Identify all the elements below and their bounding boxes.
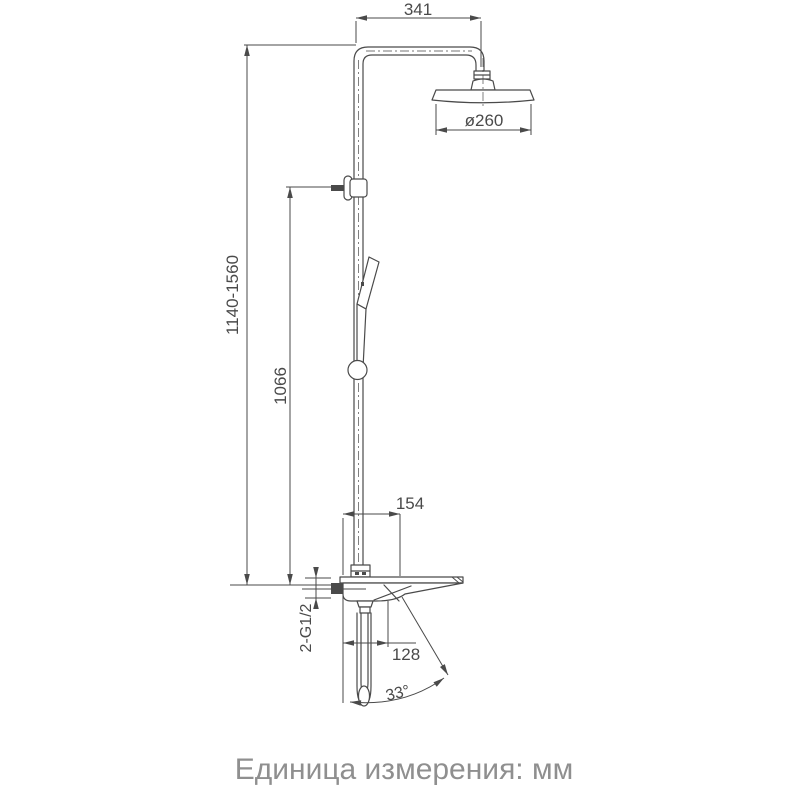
shower-head <box>432 58 534 108</box>
dim-inlet-thread-label: 2-G1/2 <box>298 603 315 652</box>
dim-riser-height-label: 1066 <box>271 367 290 405</box>
dim-spout-reach: 128 <box>343 587 420 703</box>
dim-arm-length-label: 341 <box>404 0 432 19</box>
faucet-body <box>302 577 463 601</box>
dim-total-height-label: 1140-1560 <box>223 255 242 335</box>
shower-system-technical-drawing: 341 ø260 1140-1560 1066 154 128 2-G1/2 <box>0 0 800 800</box>
hand-shower-head <box>357 257 379 309</box>
shower-hose <box>357 601 373 706</box>
dim-head-diameter: ø260 <box>436 104 531 135</box>
hose-nut <box>357 601 373 607</box>
dim-head-diameter-label: ø260 <box>465 111 504 130</box>
column-connector <box>351 565 370 577</box>
hand-shower-handle <box>357 304 366 368</box>
units-caption: Единица измерения: мм <box>235 753 573 786</box>
dim-deck-width: 154 <box>343 494 424 576</box>
dim-spout-reach-label: 128 <box>392 645 420 664</box>
slider-ring <box>348 361 367 380</box>
deck-plate <box>340 577 463 583</box>
dim-deck-width-label: 154 <box>396 494 424 513</box>
dim-arm-length: 341 <box>356 0 481 67</box>
dim-spout-angle-label: 33° <box>384 682 412 704</box>
bracket-block <box>350 179 367 197</box>
dim-inlet-thread: 2-G1/2 <box>298 567 331 652</box>
wall-bracket <box>331 176 367 200</box>
